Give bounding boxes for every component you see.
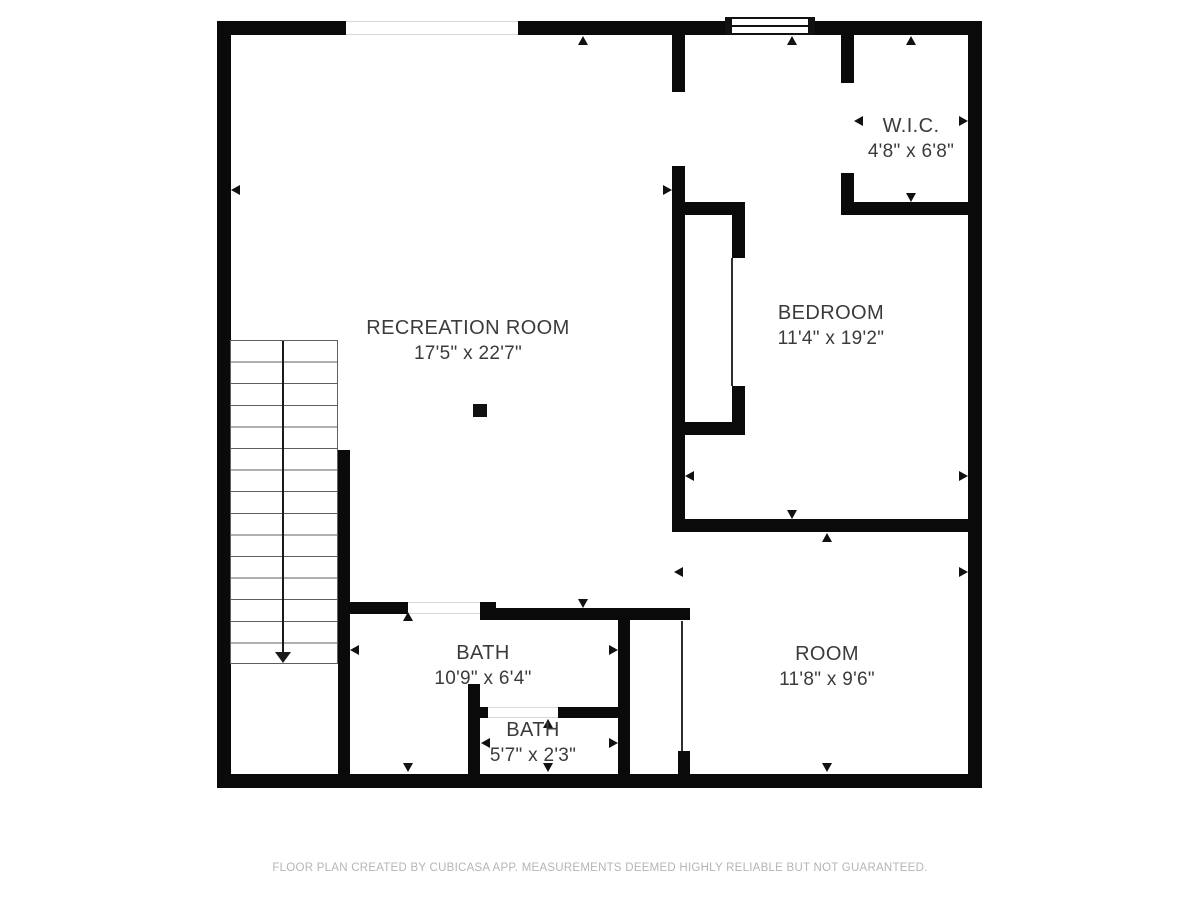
measure-arrow-up-icon [578,36,588,45]
smallbath-door-opening [488,707,558,718]
measure-arrow-right-icon [663,185,672,195]
wall-bath-top-right [492,608,690,620]
wall-wic-bottom [841,202,982,215]
stairs-direction-line [282,341,284,653]
room-dimensions: 4'8" x 6'8" [751,139,1071,164]
room-label-bath-small: BATH 5'7" x 2'3" [373,718,693,768]
room-name: BATH [373,718,693,743]
outer-wall-top [217,21,982,35]
wall-closet-right-upper [732,215,745,258]
window [725,17,815,35]
room-name: RECREATION ROOM [308,315,628,341]
wall-smallbath-top-right [558,707,618,718]
wall-closet-top [680,202,745,215]
room-name: BEDROOM [671,300,991,326]
measure-arrow-up-icon [822,533,832,542]
measure-arrow-up-icon [787,36,797,45]
measure-arrow-up-icon [906,36,916,45]
wall-opening [346,21,518,35]
wall-closet-bottom [680,422,745,435]
measure-arrow-right-icon [959,471,968,481]
stairs [230,340,338,664]
room-name: BATH [323,640,643,666]
room-name: ROOM [667,641,987,667]
wall-smallbath-top-left [476,707,488,718]
room-label-wic: W.I.C. 4'8" x 6'8" [751,114,1071,164]
support-post [473,404,487,417]
measure-arrow-down-icon [906,193,916,202]
stairs-direction-arrow [275,652,291,663]
wall-bath-top-left [350,602,408,614]
measure-arrow-right-icon [959,567,968,577]
measure-arrow-down-icon [578,599,588,608]
room-label-recreation: RECREATION ROOM 17'5" x 22'7" [308,315,628,367]
room-label-bedroom: BEDROOM 11'4" x 19'2" [671,300,991,352]
room-dimensions: 5'7" x 2'3" [373,743,693,768]
footer-disclaimer: FLOOR PLAN CREATED BY CUBICASA APP. MEAS… [0,862,1200,874]
outer-wall-left [217,21,231,788]
floor-plan-canvas: RECREATION ROOM 17'5" x 22'7" BEDROOM 11… [0,0,1200,900]
room-dimensions: 10'9" x 6'4" [323,666,643,692]
room-name: W.I.C. [751,114,1071,139]
measure-arrow-down-icon [787,510,797,519]
bath-door-opening [408,602,480,614]
window-pane-line [732,25,808,27]
room-dimensions: 11'4" x 19'2" [671,326,991,352]
measure-arrow-up-icon [403,612,413,621]
measure-arrow-left-icon [231,185,240,195]
room-label-bath: BATH 10'9" x 6'4" [323,640,643,692]
room-dimensions: 17'5" x 22'7" [308,341,628,367]
room-label-room: ROOM 11'8" x 9'6" [667,641,987,693]
wall-bedroom-bottom [672,519,982,532]
room-dimensions: 11'8" x 9'6" [667,667,987,693]
wall-closet-right-lower [732,386,745,423]
measure-arrow-left-icon [685,471,694,481]
wall-wic-left-upper [841,35,854,83]
outer-wall-bottom [217,774,982,788]
measure-arrow-down-icon [822,763,832,772]
wall-stairs-right [338,450,350,774]
wall-bedroom-divider-upper [672,35,685,92]
measure-arrow-left-icon [674,567,683,577]
